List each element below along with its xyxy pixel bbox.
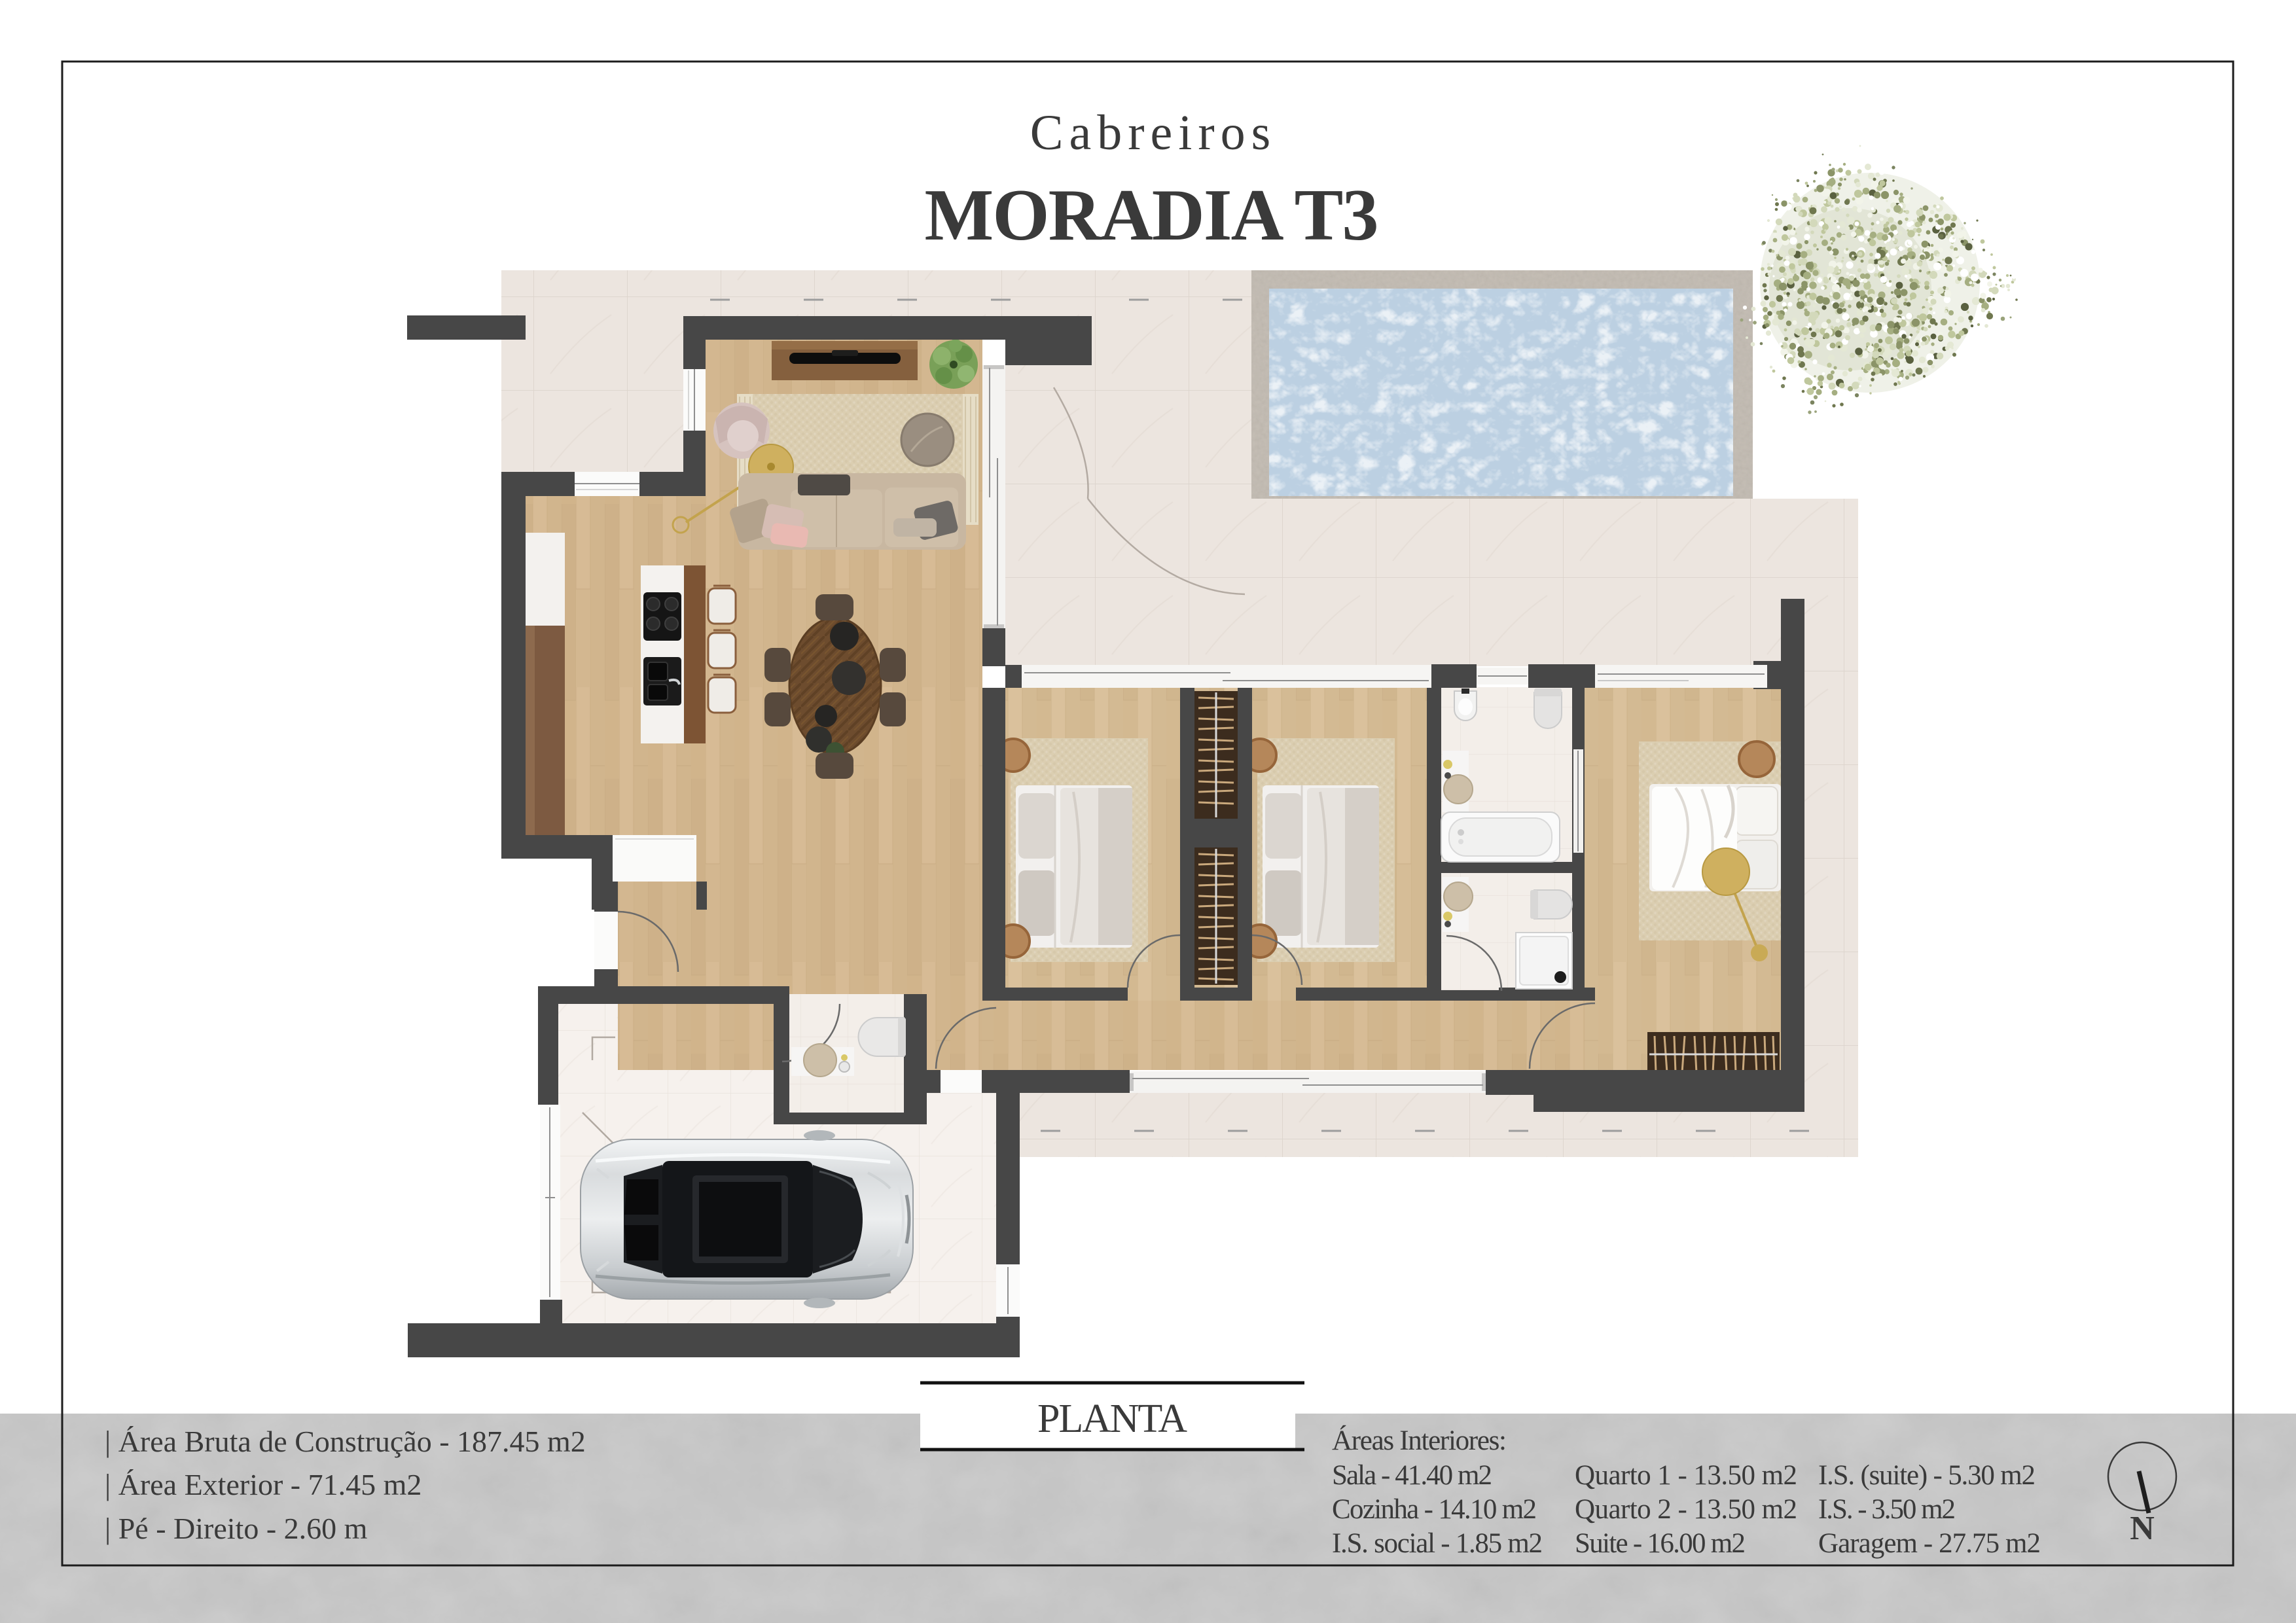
svg-text:Cozinha - 14.10 m2: Cozinha - 14.10 m2 — [1332, 1494, 1537, 1525]
svg-text:I.S. social - 1.85 m2: I.S. social - 1.85 m2 — [1332, 1528, 1543, 1559]
svg-text:Sala - 41.40 m2: Sala - 41.40 m2 — [1332, 1460, 1492, 1491]
svg-text:| Área Exterior - 71.45 m2: | Área Exterior - 71.45 m2 — [105, 1468, 422, 1501]
svg-text:Suite - 16.00 m2: Suite - 16.00 m2 — [1575, 1528, 1746, 1559]
svg-text:PLANTA: PLANTA — [1037, 1397, 1188, 1441]
svg-text:Quarto 2 - 13.50 m2: Quarto 2 - 13.50 m2 — [1575, 1494, 1797, 1525]
svg-text:I.S. (suite) - 5.30 m2: I.S. (suite) - 5.30 m2 — [1818, 1460, 2036, 1491]
svg-text:| Pé - Direito - 2.60 m: | Pé - Direito - 2.60 m — [105, 1512, 368, 1545]
svg-text:| Área Bruta de Construção - 1: | Área Bruta de Construção - 187.45 m2 — [105, 1425, 586, 1458]
svg-text:MORADIA T3: MORADIA T3 — [925, 175, 1380, 256]
svg-text:Áreas Interiores:: Áreas Interiores: — [1332, 1425, 1507, 1456]
svg-text:N: N — [2130, 1510, 2155, 1547]
svg-text:Cabreiros: Cabreiros — [1030, 105, 1276, 160]
svg-text:Garagem - 27.75 m2: Garagem - 27.75 m2 — [1818, 1528, 2041, 1559]
svg-text:Quarto 1 - 13.50 m2: Quarto 1 - 13.50 m2 — [1575, 1460, 1797, 1491]
svg-text:I.S. - 3.50 m2: I.S. - 3.50 m2 — [1818, 1494, 1956, 1525]
